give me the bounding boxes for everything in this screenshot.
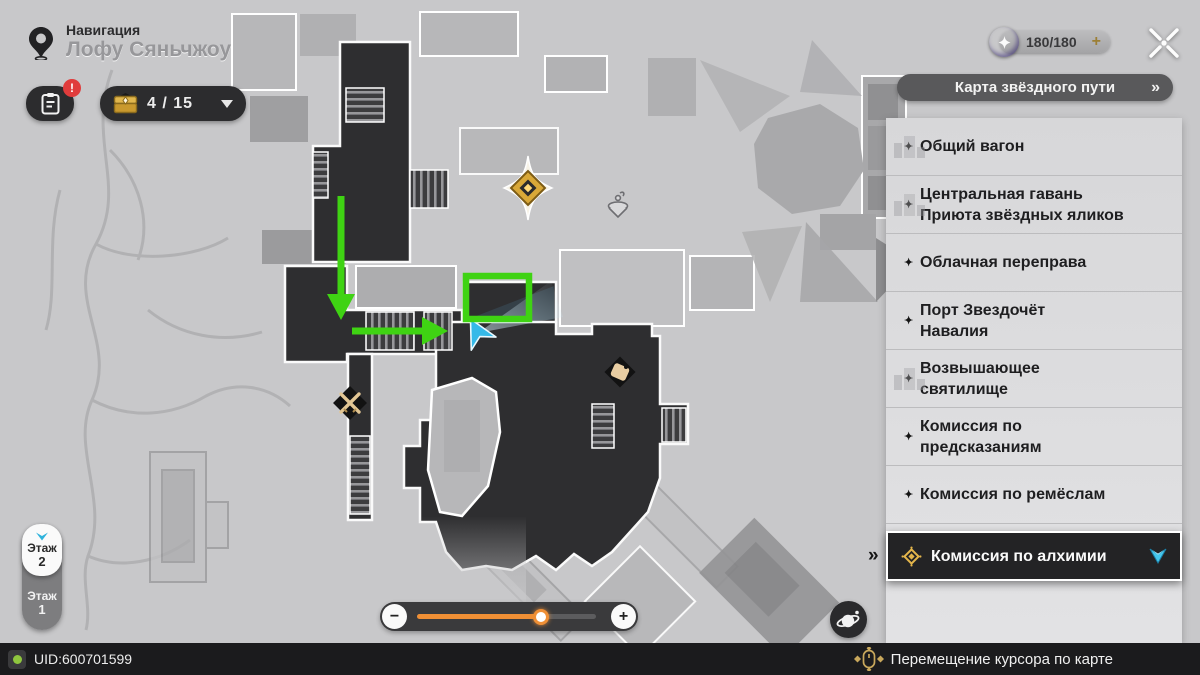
sidebar-item[interactable]: » ✦ Комиссия по алхимии [886,531,1182,581]
sidebar-item-label: Облачная переправа [920,252,1086,273]
zoom-slider-fill [417,614,541,619]
building-icon [894,194,926,216]
selected-marker-icon: » [868,545,879,567]
trailblaze-power-icon [989,27,1019,57]
online-status-icon [13,655,22,664]
planet-view-button[interactable] [830,601,867,638]
zoom-in-button[interactable]: + [611,604,636,629]
journal-icon [41,92,60,115]
sidebar-item[interactable]: » ✦ Облачная переправа [886,234,1182,292]
trailblaze-power-pill: 180/180 + [1000,31,1110,53]
floor-button[interactable]: Этаж 1 [22,576,62,629]
sidebar-item[interactable]: » ✦ Центральная гавань Приюта звёздных я… [886,176,1182,234]
sidebar-item[interactable]: » ✦ Возвышающее святилище [886,350,1182,408]
chest-counter-value: 4 / 15 [147,95,193,113]
sidebar-item-label: Центральная гавань Приюта звёздных ялико… [920,184,1124,226]
sidebar-item-label: Порт Звездочёт Навалия [920,300,1045,342]
zoom-out-button[interactable]: − [382,604,407,629]
star-rail-map-button[interactable]: Карта звёздного пути » [897,74,1173,101]
location-pin-icon [28,26,54,60]
floor-number: 1 [38,603,45,616]
area-list-panel: » ✦ Общий вагон » ✦ [886,118,1182,643]
sidebar-item-label: Возвышающее святилище [920,358,1040,400]
chevron-down-icon [35,532,49,541]
chest-icon [113,93,138,114]
floor-number: 2 [38,555,45,568]
sidebar-item[interactable]: » ✦ Порт Звездочёт Навалия [886,292,1182,350]
alchemy-commission-icon [901,546,922,567]
uid-value: UID:600701599 [34,651,132,667]
zoom-slider-track[interactable] [417,614,596,619]
star-icon: ✦ [904,256,920,269]
close-icon[interactable] [1144,23,1184,63]
building-icon [894,136,926,158]
journal-button[interactable]: ! [26,86,74,121]
sidebar-item[interactable]: » ✦ Комиссия по предсказаниям [886,408,1182,466]
sidebar-item-label: Комиссия по предсказаниям [920,416,1042,458]
floor-selector: Этаж 2 Этаж 1 [22,524,62,630]
notification-badge: ! [63,79,81,97]
control-hint: Перемещение курсора по карте [854,643,1113,675]
floor-button[interactable]: Этаж 2 [22,524,62,576]
sidebar-item-label: Комиссия по алхимии [931,546,1107,567]
map-zoom-slider: − + [380,602,638,631]
sidebar-item-label: Комиссия по ремёслам [920,484,1105,505]
building-icon [894,368,926,390]
add-energy-button[interactable]: + [1092,33,1101,51]
star-icon: ✦ [904,430,920,443]
chevron-down-icon[interactable] [1148,548,1168,564]
dropdown-icon[interactable] [221,100,233,108]
star-rail-map-label: Карта звёздного пути [955,79,1115,96]
star-icon: ✦ [904,488,920,501]
mouse-icon [854,647,884,671]
game-map-screen: Навигация Лофу Сяньчжоу ! 4 / 15 180/180… [0,0,1200,675]
sidebar-item[interactable]: » ✦ Общий вагон [886,118,1182,176]
star-icon: ✦ [904,314,920,327]
location-title: Лофу Сяньчжоу [66,38,231,62]
status-bar: UID:600701599 Перемещение курсора по кар… [0,643,1200,675]
sidebar-item-label: Общий вагон [920,136,1024,157]
nav-breadcrumb-label: Навигация [66,22,140,38]
energy-value: 180/180 [1026,34,1077,50]
control-hint-label: Перемещение курсора по карте [891,651,1113,668]
sidebar-item[interactable]: » ✦ Комиссия по ремёслам [886,466,1182,524]
zoom-slider-thumb[interactable] [533,609,549,625]
uid-chip [8,650,26,669]
chevron-right-icon: » [1151,79,1160,97]
floor-label: Этаж [27,590,57,603]
planet-icon [836,608,862,632]
chest-counter-button[interactable]: 4 / 15 [100,86,246,121]
